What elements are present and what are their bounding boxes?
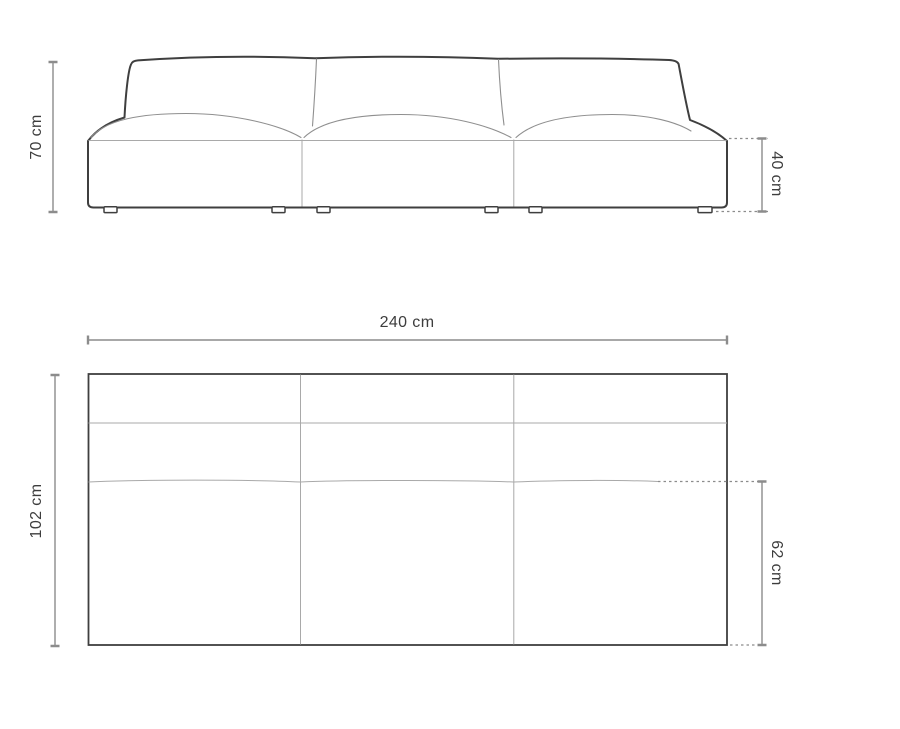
sofa-top-view (89, 374, 728, 645)
height-dimension-label: 70 cm (28, 114, 46, 160)
dimension-height-70 (49, 62, 58, 212)
foot (485, 207, 498, 213)
plan-outline (89, 374, 728, 645)
front-body-outline (88, 57, 727, 208)
depth-dimension-label: 102 cm (28, 484, 46, 539)
foot (317, 207, 330, 213)
plan-seat-front-line (89, 480, 659, 482)
diagram-canvas (0, 0, 900, 729)
dimension-depth-102 (51, 375, 60, 646)
foot (104, 207, 117, 213)
dimension-width-240 (88, 336, 727, 345)
front-base-junction-seams (302, 140, 514, 207)
front-seat-cushion-curves (91, 114, 691, 138)
foot (272, 207, 285, 213)
seat-height-dimension-label: 40 cm (767, 151, 785, 197)
dimension-lines (49, 62, 769, 646)
sofa-front-view (88, 57, 727, 213)
dimension-seat-height-40 (716, 139, 768, 212)
dimension-seat-depth-62 (658, 482, 768, 646)
front-backrest-seams (313, 59, 505, 126)
foot (529, 207, 542, 213)
seat-depth-dimension-label: 62 cm (767, 540, 785, 586)
width-dimension-label: 240 cm (380, 314, 435, 332)
foot (698, 207, 712, 213)
plan-module-dividers (301, 375, 514, 645)
sofa-dimensions-diagram: 70 cm 40 cm 240 cm 102 cm 62 cm (0, 0, 900, 729)
